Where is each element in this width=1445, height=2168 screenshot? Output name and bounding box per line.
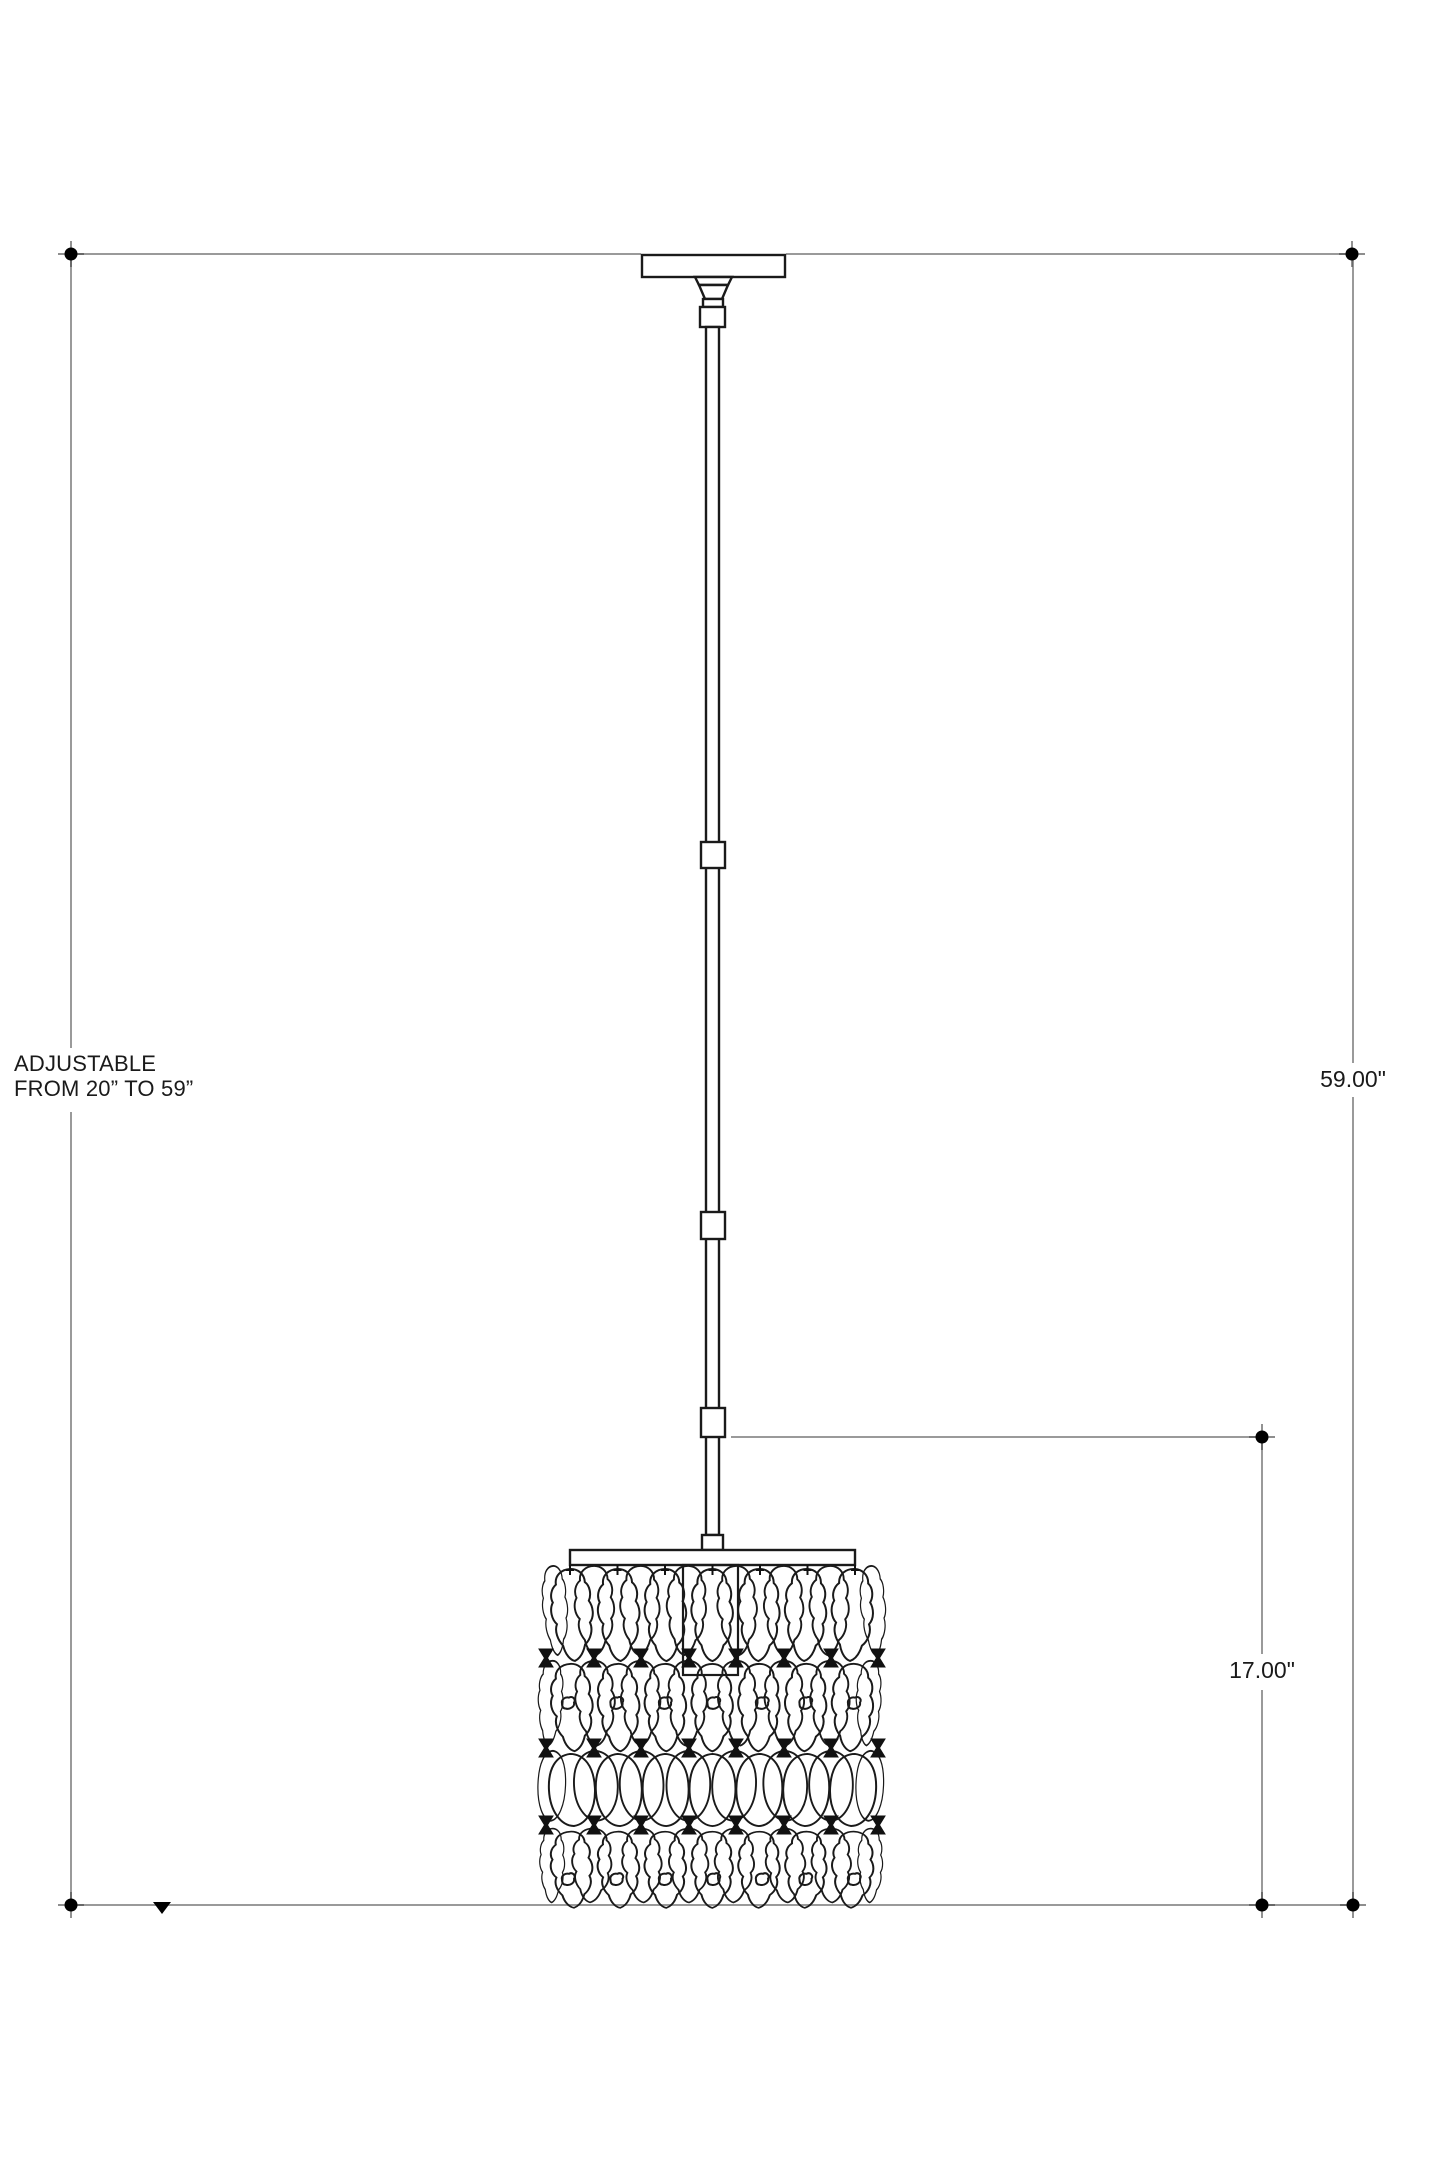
- ceiling-canopy: [642, 255, 785, 277]
- adjustable-line1: ADJUSTABLE: [14, 1051, 193, 1076]
- adjustable-line2: FROM 20” TO 59”: [14, 1076, 193, 1101]
- drawing-canvas: ADJUSTABLE FROM 20” TO 59” 59.00" 17.00": [0, 0, 1445, 2168]
- stem-rod: [706, 327, 719, 1535]
- fixture-height-label: 17.00": [1222, 1655, 1302, 1686]
- pendant-fixture: [570, 255, 855, 1675]
- shell-array: [536, 1565, 888, 1909]
- stem-coupling-2: [701, 1212, 725, 1239]
- stem-coupling-3: [701, 1408, 725, 1437]
- adjustable-range-label: ADJUSTABLE FROM 20” TO 59”: [14, 1049, 197, 1103]
- pendant-line-drawing: [0, 0, 1445, 2168]
- stem-coupling-1: [701, 842, 725, 868]
- stem-hang-cylinder: [700, 307, 725, 327]
- overall-height-label: 59.00": [1313, 1064, 1393, 1095]
- fixture-top-plate: [570, 1550, 855, 1565]
- floor-arrow-marker: [153, 1902, 171, 1914]
- stem-ferrule: [702, 1535, 723, 1550]
